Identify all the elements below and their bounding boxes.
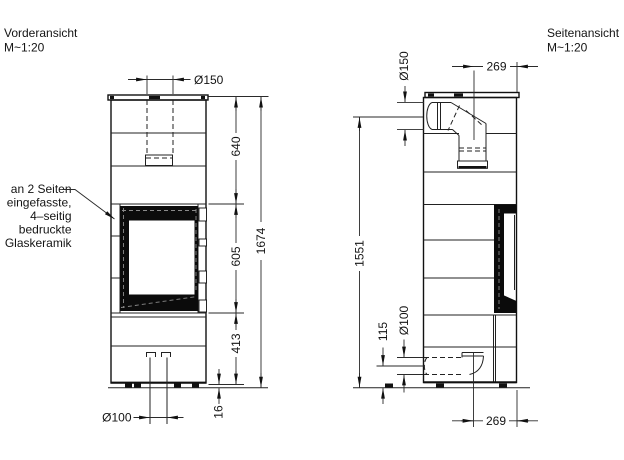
- note-line-1: an 2 Seiten: [11, 182, 72, 196]
- side-air-front-label: 269: [486, 414, 506, 428]
- front-air-inlet: [147, 353, 171, 425]
- technical-drawing: Vorderansicht M~1:20: [0, 0, 624, 460]
- note-line-3: 4–seitig: [30, 209, 71, 223]
- side-stove-body: [424, 93, 520, 383]
- drawing-svg: Vorderansicht M~1:20: [0, 0, 624, 460]
- front-window-height-label: 605: [229, 246, 243, 266]
- front-base-height-label: 413: [229, 333, 243, 353]
- front-flue-diameter-label: Ø150: [194, 73, 224, 87]
- side-air-diameter-label: Ø100: [397, 305, 411, 335]
- side-view-title: Seitenansicht: [547, 26, 620, 40]
- side-flue-height-label: 1551: [353, 240, 367, 267]
- side-view-scale: M~1:20: [547, 41, 588, 55]
- front-view: Vorderansicht M~1:20: [4, 26, 269, 425]
- front-dim-feet-height: 16: [212, 369, 226, 419]
- front-feet-height-label: 16: [212, 405, 226, 419]
- side-dim-air-diameter: Ø100: [397, 305, 423, 392]
- side-dim-flue-diameter: Ø150: [397, 51, 424, 146]
- front-air-diameter-label: Ø100: [102, 411, 132, 425]
- side-feet: [353, 384, 530, 388]
- side-air-height-label: 115: [376, 322, 390, 341]
- front-view-title: Vorderansicht: [4, 26, 78, 40]
- front-view-scale: M~1:20: [4, 41, 45, 55]
- note-line-4: bedruckte: [19, 223, 72, 237]
- side-view: Seitenansicht M~1:20: [353, 26, 620, 428]
- side-dim-air-to-front: 269: [452, 390, 538, 428]
- front-glass-window: [120, 206, 198, 311]
- side-glass-window: [494, 205, 517, 314]
- front-dim-total-height: 1674: [254, 97, 268, 388]
- front-total-height-label: 1674: [254, 227, 268, 254]
- front-dim-flue-diameter: Ø150: [128, 73, 224, 94]
- front-dim-air-diameter: Ø100: [102, 411, 183, 425]
- note-line-5: Glaskeramik: [5, 236, 73, 250]
- side-dim-flue-to-front: 269: [452, 60, 538, 93]
- side-flue-diameter-label: Ø150: [397, 51, 411, 81]
- side-air-inlet: [424, 353, 484, 428]
- side-flue-front-label: 269: [486, 60, 506, 74]
- front-top-height-label: 640: [229, 136, 243, 156]
- side-flue-elbow: [427, 71, 488, 169]
- side-dim-flue-height: 1551: [353, 117, 424, 388]
- front-annotation-glass-note: an 2 Seiten eingefasste, 4–seitig bedruc…: [5, 182, 115, 250]
- note-line-2: eingefasste,: [7, 196, 72, 210]
